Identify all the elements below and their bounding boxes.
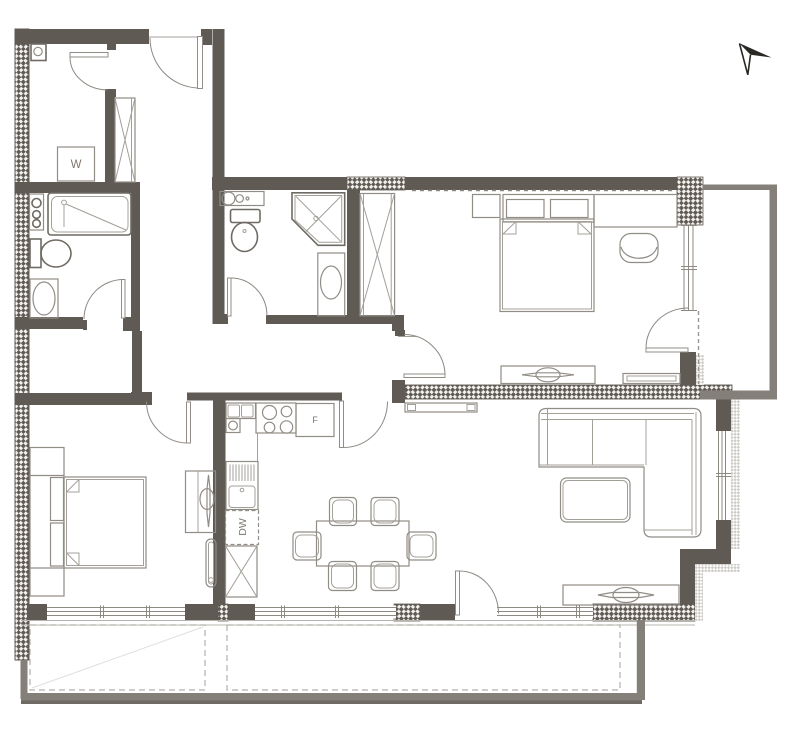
svg-text:W: W [71,159,82,171]
svg-text:F: F [312,415,318,425]
svg-text:DW: DW [237,518,249,536]
